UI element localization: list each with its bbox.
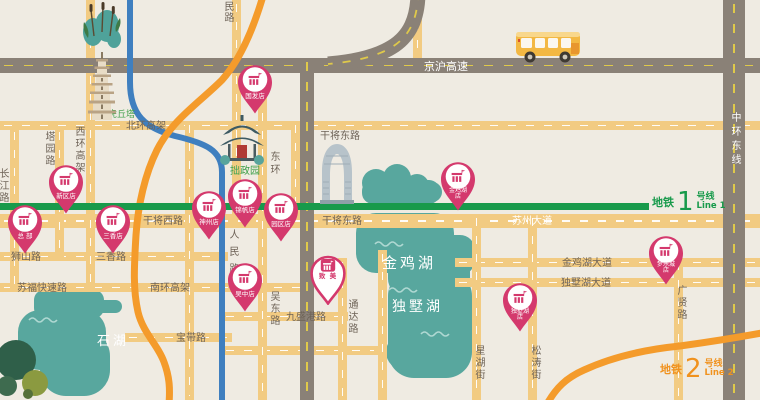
store-pin-label: 新区店 xyxy=(46,193,86,200)
metro-line2-cn: 地铁 xyxy=(660,361,682,377)
huqiu-pagoda-icon xyxy=(87,52,117,120)
wave-icon xyxy=(28,315,58,323)
pin-shop-icon xyxy=(646,233,686,285)
road-label-suzhou-avenue: 苏州大道 xyxy=(512,216,552,227)
store-pin-label: 三香店 xyxy=(93,233,133,240)
road-label-ganjiang-east-north: 干将东路 xyxy=(320,131,360,142)
store-pin-label: 国发店 xyxy=(235,93,275,100)
lake-label-jinji: 金鸡湖 xyxy=(382,255,436,272)
road-label-ganjiang-east: 干将东路 xyxy=(322,216,362,227)
highway-branch xyxy=(328,0,418,64)
metro-line1-legend: 地铁 1 号线 Line 1 xyxy=(652,190,726,214)
trees-icon xyxy=(0,336,52,400)
road-label-zhonghuan: 中环东线 xyxy=(729,112,740,168)
road-label-guangxian: 广贤路 xyxy=(675,285,686,321)
metro-line1-number: 1 xyxy=(677,190,694,214)
metro-line1-en: Line 1 xyxy=(697,202,726,212)
store-pin-shenzhou[interactable]: 神州店 xyxy=(189,188,229,240)
store-pin-label: 独墅湖店 xyxy=(500,309,540,322)
store-pin-jinfan[interactable]: 锦帆店 xyxy=(225,176,265,228)
road-label-beihuan: 北环高架 xyxy=(126,121,166,132)
metro-line2-en: Line 2 xyxy=(705,369,734,379)
road-label-baodai: 宝带路 xyxy=(176,333,206,344)
pin-shop-icon xyxy=(235,62,275,114)
store-pin-sanxiang[interactable]: 三香店 xyxy=(93,202,133,254)
metro-line1-cn: 地铁 xyxy=(652,194,674,210)
store-pin-zongbu[interactable]: 总 部 xyxy=(5,202,45,254)
road-label-changjiang: 长江路 xyxy=(0,168,8,204)
reeds-icon xyxy=(80,2,122,52)
metro-line2-number: 2 xyxy=(685,357,702,381)
store-pin-yuanqu[interactable]: 园区店 xyxy=(261,190,301,242)
metro-line2-legend: 地铁 2 号线 Line 2 xyxy=(660,357,734,381)
pin-shop-icon xyxy=(225,260,265,312)
pin-shop-icon xyxy=(189,188,229,240)
road-label-dushuhu-avenue: 独墅湖大道 xyxy=(561,278,611,289)
brand-pin-zhimei[interactable]: 致 美 xyxy=(308,253,348,305)
road-label-sufu: 苏福快速路 xyxy=(17,283,67,294)
road-label-renmin-top: 民路 xyxy=(222,1,233,23)
road-label-songtao: 松涛街 xyxy=(529,345,540,381)
pin-shop-icon xyxy=(225,176,265,228)
lake-label-shihu: 石湖 xyxy=(97,335,129,349)
road-label-jiusheng: 九盛港路 xyxy=(286,312,326,323)
map-canvas: 京沪高速 中环东线 北环高架 干将东路 干将西路 干将东路 苏州大道 狮山路 三… xyxy=(0,0,760,400)
gate-of-orient-icon xyxy=(320,142,354,204)
brand-pin-label: 致 美 xyxy=(308,273,348,280)
store-pin-label: 神州店 xyxy=(189,219,229,226)
road-label-jinjihu-avenue: 金鸡湖大道 xyxy=(562,258,612,269)
wave-icon xyxy=(388,285,418,293)
store-pin-xinqu[interactable]: 新区店 xyxy=(46,162,86,214)
pin-shop-icon xyxy=(93,202,133,254)
pin-shop-icon xyxy=(261,190,301,242)
pin-shop-icon xyxy=(5,202,45,254)
pin-shop-icon xyxy=(438,159,478,211)
wave-icon xyxy=(374,239,404,247)
road-label-ganjiang-west: 干将西路 xyxy=(143,216,183,227)
store-pin-label: 锦帆店 xyxy=(225,207,265,214)
road-label-jinghu: 京沪高速 xyxy=(424,61,468,73)
store-pin-label: 总 部 xyxy=(5,233,45,240)
store-pin-jinjihu[interactable]: 金鸡湖店 xyxy=(438,159,478,211)
bus-icon xyxy=(513,24,585,64)
pin-shop-icon xyxy=(46,162,86,214)
store-pin-label: 梦乐城店 xyxy=(646,262,686,275)
store-pin-dushuhu[interactable]: 独墅湖店 xyxy=(500,280,540,332)
lake-label-dushu: 独墅湖 xyxy=(392,300,443,315)
zhuozheng-pavilion-icon xyxy=(217,114,267,166)
store-pin-guofa[interactable]: 国发店 xyxy=(235,62,275,114)
store-pin-menglecheng[interactable]: 梦乐城店 xyxy=(646,233,686,285)
wave-icon xyxy=(420,329,450,337)
road-label-donghuan: 东环 xyxy=(268,151,279,177)
store-pin-label: 吴中店 xyxy=(225,291,265,298)
store-pin-wuzhong[interactable]: 吴中店 xyxy=(225,260,265,312)
pin-shop-icon xyxy=(500,280,540,332)
road-label-xinghu: 星湖街 xyxy=(473,345,484,381)
store-pin-label: 园区店 xyxy=(261,221,301,228)
road-label-wudong: 吴东路 xyxy=(268,291,279,327)
road-label-nanhuan: 南环高架 xyxy=(150,283,190,294)
store-pin-label: 金鸡湖店 xyxy=(438,188,478,201)
